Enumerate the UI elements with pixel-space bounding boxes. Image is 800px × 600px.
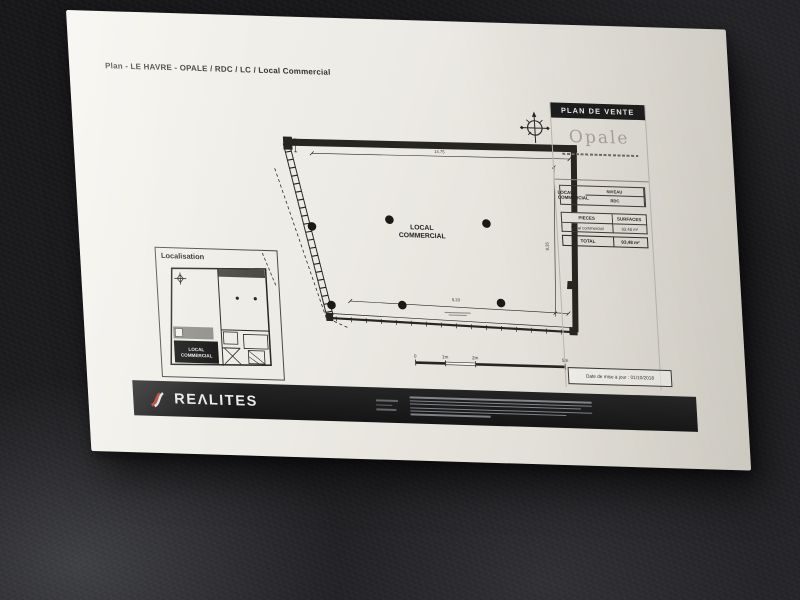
- scale-bar: 0 1m 2m 5m: [411, 352, 574, 373]
- structural-columns: [307, 213, 506, 315]
- title-block: PLAN DE VENTE Opale NIVEAU LOCAL COMMERC…: [549, 102, 661, 389]
- scale-1m: 1m: [442, 354, 449, 359]
- brand-box: Opale: [552, 126, 649, 182]
- title-block-header: PLAN DE VENTE: [550, 102, 645, 120]
- room-label-line2: COMMERCIAL: [399, 232, 446, 240]
- wall-top: [285, 137, 577, 155]
- miniplan-label-line2: COMMERCIAL: [181, 353, 213, 359]
- realites-logo: REΛLITES: [147, 388, 259, 411]
- surface-table: PIECES SURFACES Local commercial 93,48 m…: [561, 212, 649, 249]
- address-microtext: [562, 153, 638, 158]
- brand-logo-opale: Opale: [552, 126, 647, 149]
- dim-bottom-label: 9,20: [452, 297, 461, 302]
- document-sheet: Plan - LE HAVRE - OPALE / RDC / LC / Loc…: [66, 10, 751, 471]
- room-label-line1: LOCAL: [410, 224, 434, 232]
- glazing-mullions-left: [286, 143, 330, 316]
- dim-right-label: 8,35: [545, 241, 550, 250]
- storefront-bottom: [329, 318, 573, 332]
- row-piece-surface: 93,48 m²: [613, 224, 648, 234]
- row-piece-name: Local commercial: [561, 223, 613, 234]
- footer-field-labels: [376, 400, 399, 411]
- scale-0: 0: [414, 353, 417, 358]
- total-value: 93,48 m²: [613, 236, 648, 248]
- photo-of-plan-on-desk: Plan - LE HAVRE - OPALE / RDC / LC / Loc…: [0, 0, 800, 600]
- date-updated: Date de mise à jour : 01/10/2018: [568, 367, 673, 387]
- realites-helix-icon: [147, 388, 168, 409]
- level-table: NIVEAU LOCAL COMMERCIAL RDC: [559, 185, 646, 208]
- miniplan-label-line1: LOCAL: [188, 347, 204, 352]
- localisation-inset: Localisation LOCAL COMMERCIAL: [154, 247, 284, 381]
- document-title: Plan - LE HAVRE - OPALE / RDC / LC / Loc…: [105, 61, 331, 77]
- dim-top-label: 14,75: [434, 149, 445, 154]
- footer-legal-text: [409, 397, 592, 421]
- lot-name: LOCAL COMMERCIAL: [560, 186, 586, 205]
- localisation-miniplan: LOCAL COMMERCIAL: [161, 262, 276, 371]
- floor-plan-drawing: 14,75 8,35 9,20 LOCAL COMMERCIAL: [270, 126, 600, 343]
- niveau-value: RDC: [586, 196, 645, 207]
- total-label: TOTAL: [562, 235, 614, 248]
- scale-2m: 2m: [472, 355, 479, 360]
- realites-logo-text: REΛLITES: [174, 391, 259, 410]
